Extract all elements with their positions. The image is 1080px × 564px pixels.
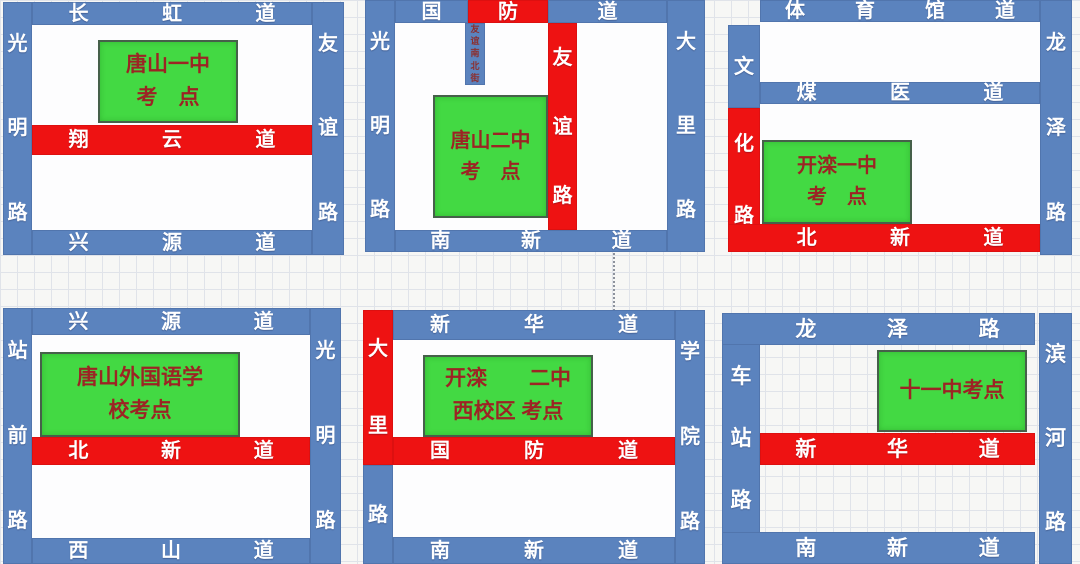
- road-vertical-youyi: 友谊路: [548, 23, 577, 230]
- map-panel-tangshan-no2: 光明路 大里路 国 防 道 友谊南北街 友谊路 南新道 唐山二中 考 点: [365, 0, 705, 252]
- map-interior-upper: [760, 22, 1040, 82]
- road-left-guangming: 光明路: [3, 2, 32, 255]
- road-top-guofang-segment-red: 防: [468, 0, 548, 23]
- map-panel-kailuan-no1: 龙泽路 文 化路 体育馆道 煤医道 北新道 开滦一中 考 点: [728, 0, 1072, 255]
- road-mid-guofang: 国防道: [393, 437, 675, 465]
- map-panel-kailuan-no2-west: 大里 路 学院路 新华道 国防道 南新道 开滦 二中 西校区 考点: [363, 310, 705, 564]
- road-bottom-xingyuan: 兴源道: [32, 230, 312, 255]
- road-right-youyi: 友谊路: [312, 2, 344, 255]
- road-right-binhe: 滨河路: [1039, 313, 1072, 564]
- site-name-line2: 考 点: [461, 157, 521, 188]
- site-name-line2: 西校区 考点: [453, 396, 564, 429]
- road-left-dali-blue-part: 路: [363, 465, 393, 564]
- road-left-chezhan: 车站路: [722, 345, 760, 532]
- road-mid-xiangyun: 翔云道: [32, 125, 312, 155]
- exam-site-label-kailuan-no1: 开滦一中 考 点: [762, 140, 912, 224]
- map-panel-foreign-language-school: 站前路 光明路 兴源道 北新道 西山道 唐山外国语学 校考点: [3, 308, 341, 564]
- exam-site-label-kailuan-no2-west: 开滦 二中 西校区 考点: [423, 355, 593, 437]
- road-right-guangming: 光明路: [310, 308, 341, 564]
- site-name-line1: 十一中考点: [900, 375, 1005, 408]
- map-panel-no11: 车站路 龙泽路 南新道 滨河路 新华道 十一中考点: [722, 313, 1072, 564]
- road-right-longze: 龙泽路: [1040, 0, 1072, 255]
- site-name-line2: 校考点: [109, 395, 172, 428]
- site-name-line1: 唐山一中: [126, 49, 210, 82]
- exam-site-label-no11: 十一中考点: [877, 350, 1027, 432]
- road-bottom-nanxin: 南新道: [760, 532, 1035, 564]
- road-right-dali: 大里路: [667, 0, 705, 252]
- road-bottom-nanxin: 南新道: [393, 537, 675, 564]
- road-top-xingyuan: 兴源道: [32, 308, 310, 335]
- site-name-line2: 考 点: [807, 182, 867, 213]
- road-bottom-nanxin: 南新道: [395, 230, 667, 252]
- exam-site-label-foreign-language-school: 唐山外国语学 校考点: [40, 352, 240, 437]
- road-top-guofang-segment-left: 国: [395, 0, 468, 23]
- road-left-zhanqian: 站前路: [3, 308, 32, 564]
- map-panel-tangshan-no1: 光明路 友谊路 长虹道 翔云道 兴源道 唐山一中 考 点: [3, 2, 344, 255]
- site-name-line2: 考 点: [137, 82, 200, 115]
- road-bottom-xishan: 西山道: [32, 538, 310, 564]
- road-left-guangming: 光明路: [365, 0, 395, 252]
- site-name-line1: 唐山外国语学: [77, 362, 203, 395]
- map-fold-dashed-line: [613, 253, 615, 311]
- road-mid-xinhua: 新华道: [760, 433, 1035, 465]
- road-top-longze: 龙泽路: [760, 313, 1035, 345]
- exam-site-maps: 光明路 友谊路 长虹道 翔云道 兴源道 唐山一中 考 点 光明路 大里路 国 防…: [0, 0, 1080, 564]
- road-right-xueyuan: 学院路: [675, 310, 705, 564]
- road-left-wenhua-blue-part: 文: [728, 25, 760, 108]
- exam-site-label-tangshan-no1: 唐山一中 考 点: [98, 40, 238, 123]
- site-name-line1: 开滦 二中: [445, 363, 571, 396]
- road-bottom-beixin: 北新道: [728, 224, 1040, 252]
- site-name-line1: 唐山二中: [451, 126, 531, 157]
- road-top-xinhua: 新华道: [393, 310, 675, 340]
- exam-site-label-tangshan-no2: 唐山二中 考 点: [433, 95, 548, 218]
- road-left-dali-red-part: 大里: [363, 310, 393, 465]
- road-alley-youyi-south-north: 友谊南北街: [465, 23, 485, 85]
- site-name-line1: 开滦一中: [797, 151, 877, 182]
- road-top-changhong: 长虹道: [32, 2, 312, 25]
- road-top-tiyuguan: 体育馆道: [760, 0, 1040, 22]
- road-top-guofang-segment-right: 道: [548, 0, 667, 23]
- road-mid-beixin: 北新道: [32, 437, 310, 465]
- road-mid-meiyi: 煤医道: [760, 82, 1040, 104]
